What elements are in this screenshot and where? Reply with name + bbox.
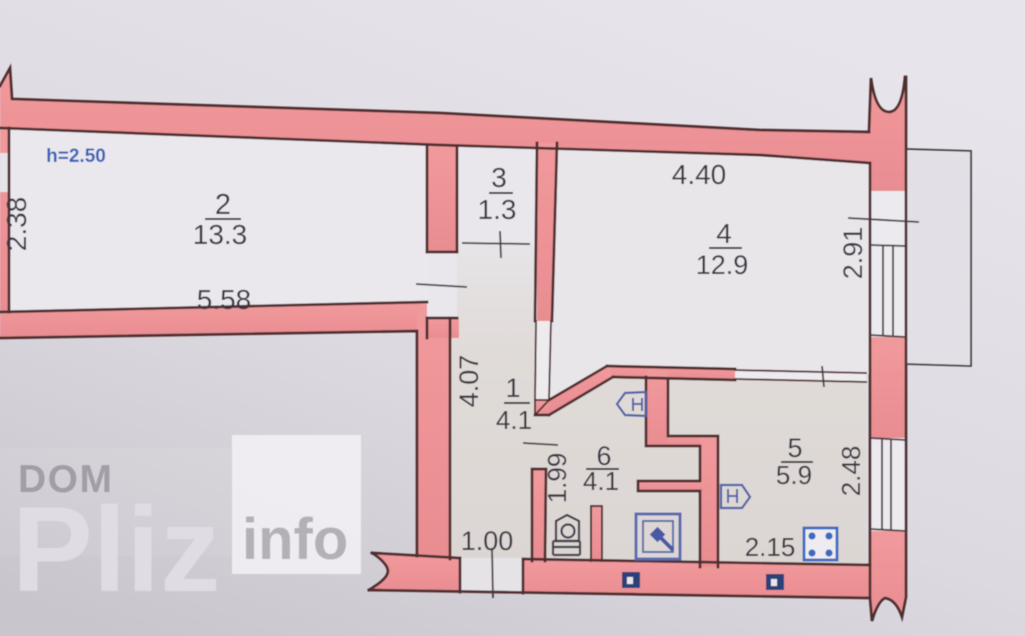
svg-text:5.58: 5.58 — [197, 284, 252, 315]
svg-text:info: info — [242, 507, 348, 572]
svg-text:3: 3 — [491, 162, 507, 193]
svg-text:2.38: 2.38 — [1, 197, 32, 252]
svg-text:2.91: 2.91 — [838, 227, 868, 280]
svg-text:2.15: 2.15 — [745, 532, 796, 562]
svg-text:13.3: 13.3 — [193, 219, 248, 250]
svg-text:Pliz: Pliz — [12, 481, 220, 617]
svg-text:4.1: 4.1 — [496, 405, 532, 435]
svg-text:4.07: 4.07 — [454, 355, 484, 408]
svg-text:1.00: 1.00 — [461, 526, 514, 556]
svg-text:5.9: 5.9 — [776, 460, 812, 490]
svg-text:2: 2 — [215, 189, 231, 221]
svg-text:4.1: 4.1 — [583, 466, 619, 496]
svg-text:4.40: 4.40 — [672, 159, 727, 190]
svg-text:1.3: 1.3 — [478, 194, 517, 225]
svg-text:1.99: 1.99 — [542, 453, 572, 504]
svg-text:h=2.50: h=2.50 — [46, 146, 106, 167]
svg-text:2.48: 2.48 — [836, 446, 866, 497]
svg-text:4: 4 — [716, 218, 732, 249]
svg-text:12.9: 12.9 — [696, 250, 749, 280]
svg-text:1: 1 — [505, 373, 520, 403]
svg-text:5: 5 — [787, 433, 802, 463]
